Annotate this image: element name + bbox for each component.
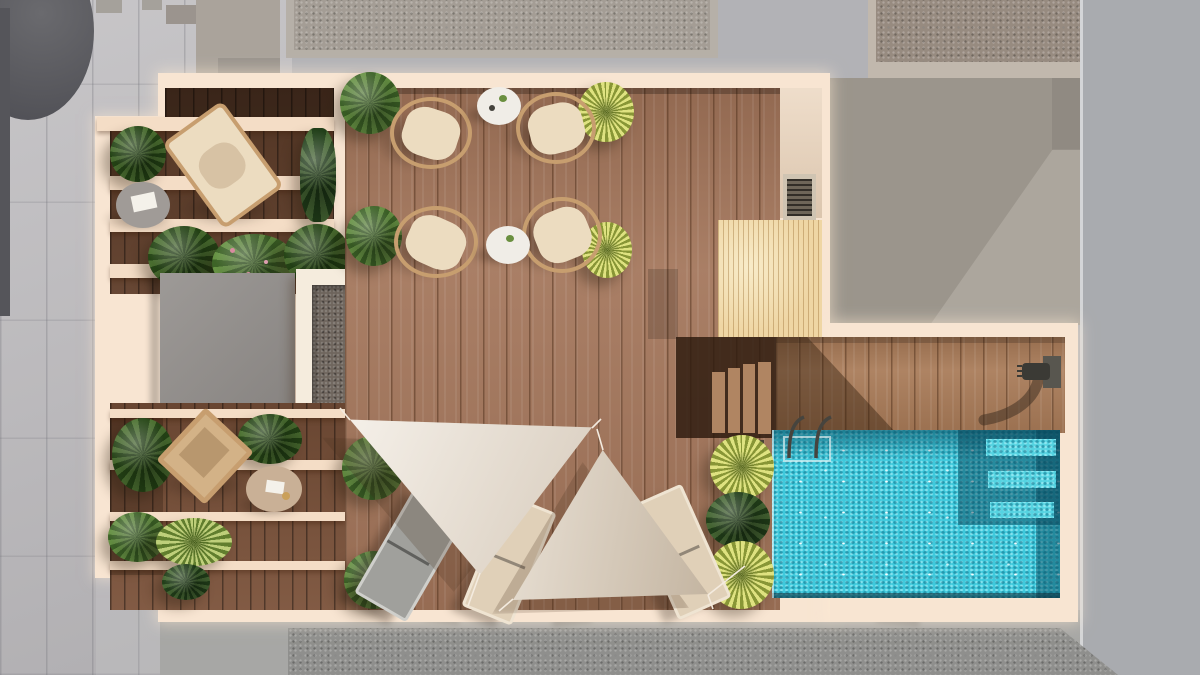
shower-arm-shadow xyxy=(984,381,1038,420)
rope-4 xyxy=(597,429,603,450)
outdoor-shower xyxy=(984,356,1061,420)
rope-5 xyxy=(499,599,513,611)
shower-head-bristles xyxy=(1017,366,1022,376)
rope-1 xyxy=(340,408,350,420)
rope-2 xyxy=(468,573,480,606)
rope-7 xyxy=(708,595,713,609)
rope-6 xyxy=(708,566,745,595)
rope-3 xyxy=(592,419,601,428)
rooftop-terrace-render xyxy=(0,0,1200,675)
sail-ropes xyxy=(340,408,745,611)
shower-head xyxy=(1022,363,1050,380)
pool-ladder xyxy=(784,417,831,461)
detail-overlay xyxy=(0,0,1200,675)
